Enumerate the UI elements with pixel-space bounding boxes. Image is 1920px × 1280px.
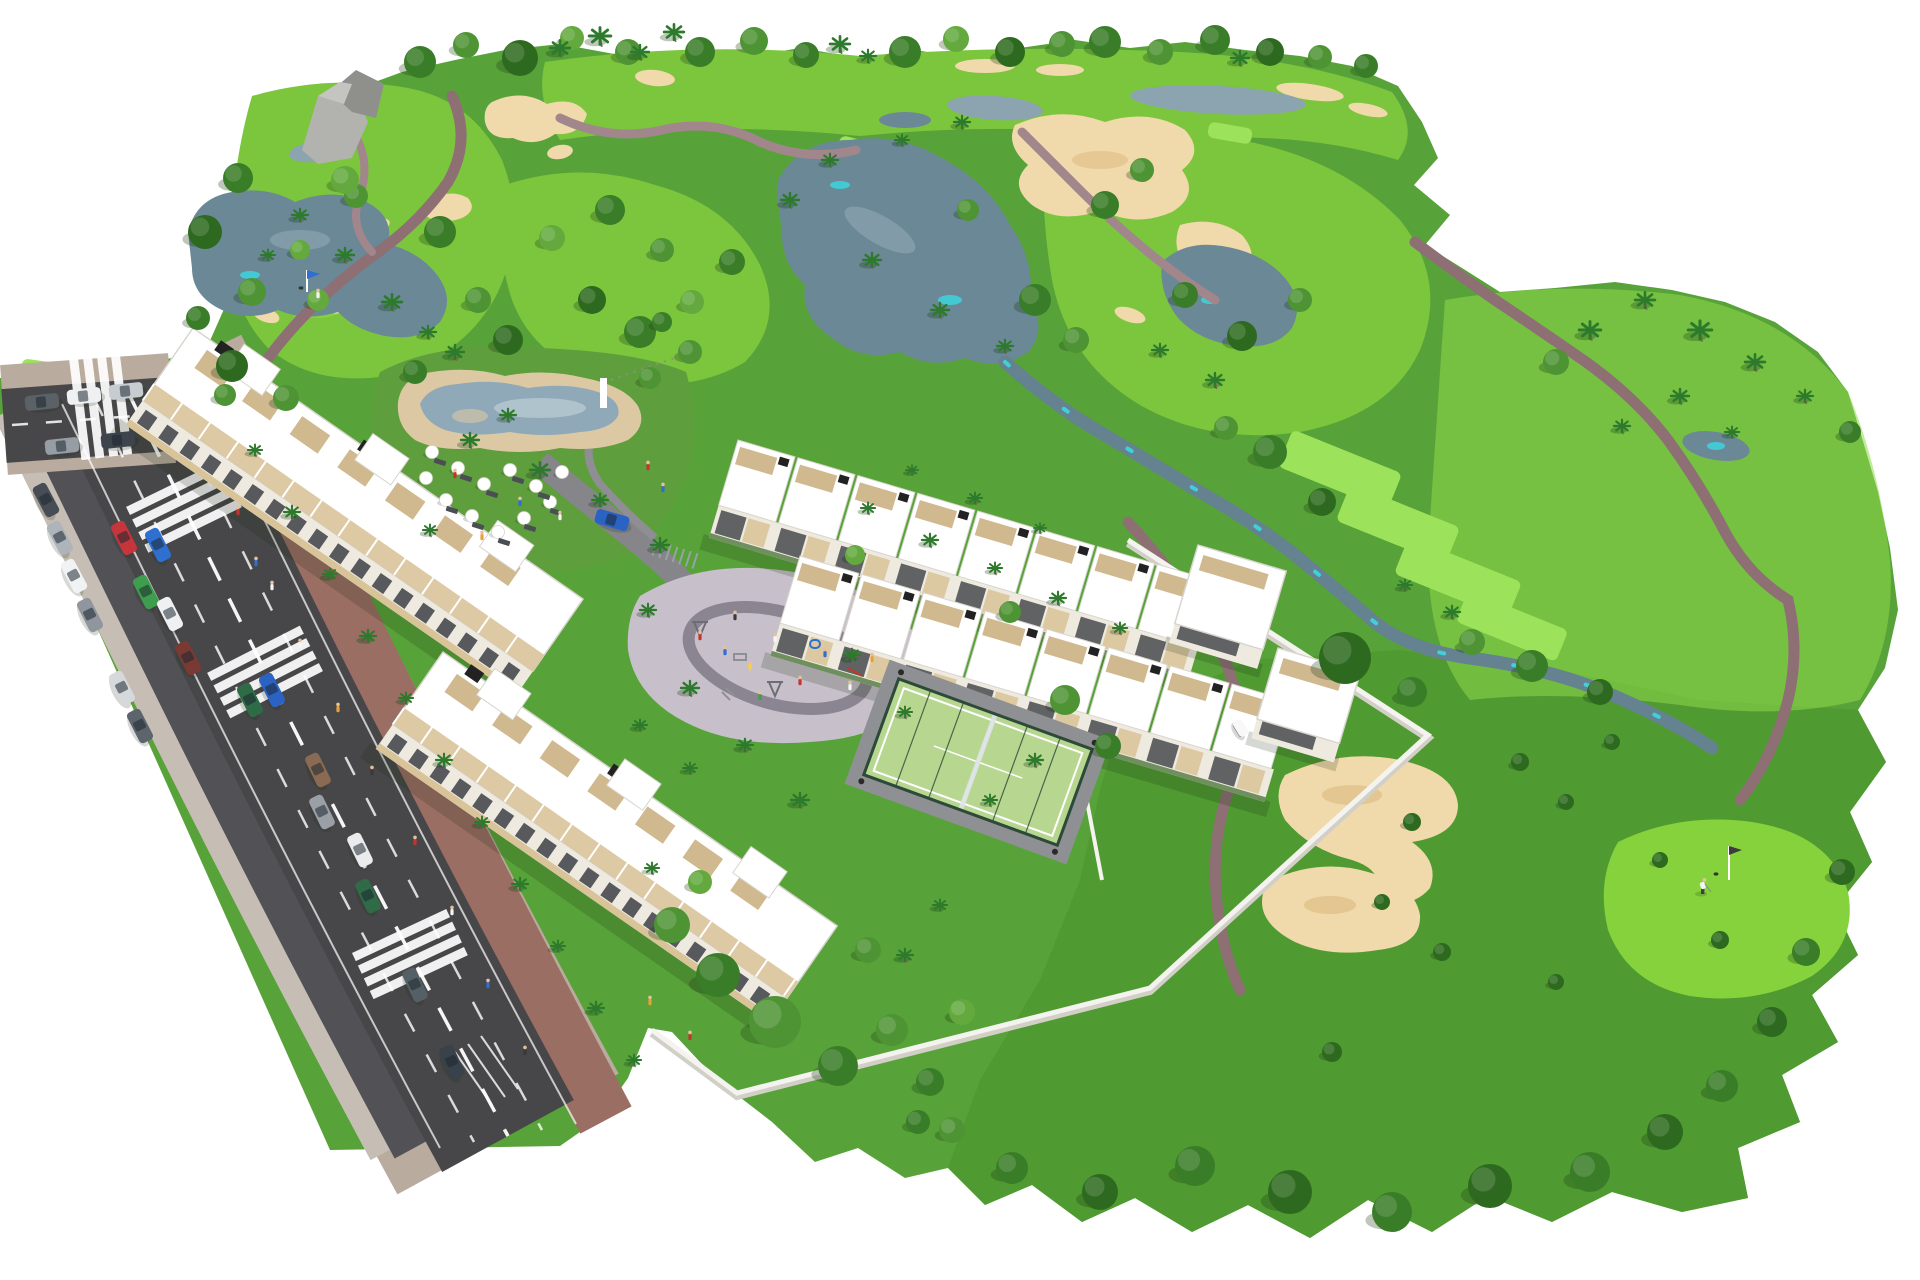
person (413, 836, 417, 846)
person (254, 557, 258, 567)
golf-hole (299, 286, 304, 289)
person (723, 646, 727, 656)
aerial-masterplan-rendering (0, 0, 1920, 1280)
person (798, 676, 802, 686)
person (823, 648, 827, 658)
person (848, 681, 852, 691)
golf-hole (1714, 872, 1719, 875)
rendering-canvas (0, 0, 1920, 1280)
swimming-pool-area (398, 370, 642, 452)
person (298, 639, 302, 649)
person (486, 979, 490, 989)
person (733, 611, 737, 621)
person (773, 633, 777, 643)
person (236, 506, 240, 516)
person (688, 1031, 692, 1041)
person (480, 531, 484, 541)
person (758, 691, 762, 701)
person (646, 461, 650, 471)
person (661, 483, 665, 493)
person (870, 653, 874, 663)
person (518, 497, 522, 507)
person (748, 661, 752, 671)
person (558, 511, 562, 521)
putting-green-main (1604, 820, 1850, 999)
person (450, 906, 454, 916)
person (648, 996, 652, 1006)
person (698, 631, 702, 641)
person (523, 1046, 527, 1056)
pool-feature-wall (600, 378, 607, 408)
person (453, 469, 457, 479)
person (316, 289, 320, 299)
person (370, 766, 374, 776)
person (270, 581, 274, 591)
person (336, 703, 340, 713)
